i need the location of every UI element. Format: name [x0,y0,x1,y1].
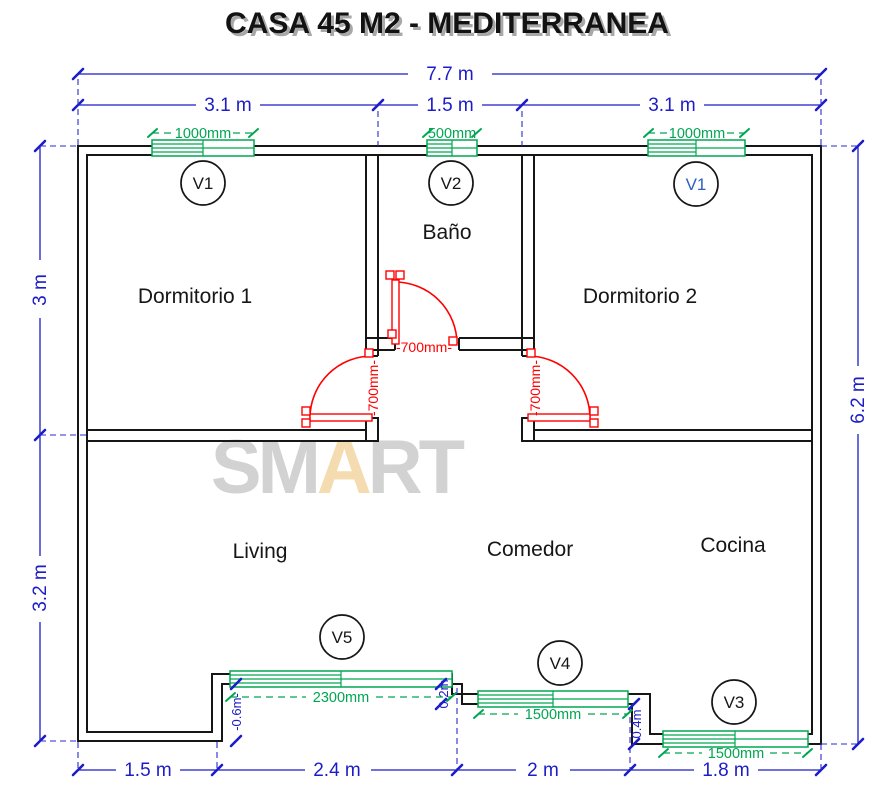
bathroom-right-wall [522,155,534,356]
dim-left-upper: 3 m [30,274,51,306]
window-tag-label: V4 [550,654,571,673]
window-tag-v1-left: V1 [181,161,225,205]
door-size-dorm1: -700mm- [365,360,381,416]
window-tag-label: V2 [441,174,462,193]
bathroom-left-wall [366,155,378,356]
room-label-comedor: Comedor [487,538,573,561]
window-v1-left [152,140,254,156]
dim-left-lower: 3.2 m [30,564,51,612]
window-v4 [478,691,628,707]
window-v3 [663,731,808,747]
room-label-bano: Baño [422,221,471,244]
window-tag-v1-right: V1 [674,162,718,206]
window-tag-label: V1 [193,174,214,193]
step-dimensions: -0.6m- 0.2m 0.4m [229,679,644,749]
window-v5 [230,671,452,687]
window-size-v5: 2300mm [313,690,369,706]
watermark-a: A [317,425,370,510]
room-label-dormitorio-2: Dormitorio 2 [583,285,697,308]
dim-top-seg1: 3.1 m [204,95,252,116]
room-label-dormitorio-1: Dormitorio 1 [138,285,252,308]
floor-plan-drawing: CASA 45 M2 - MEDITERRANEA CASA 45 M2 - M… [0,0,893,794]
smart-watermark: SMART [211,425,465,510]
dim-bottom-1: 1.5 m [124,760,172,781]
window-size-v2: 500mm [428,126,476,142]
dorm2-door: -700mm- [527,349,598,427]
watermark-rt: RT [368,425,465,510]
dim-step-0-4m: 0.4m [629,710,644,739]
window-dim-v2: 500mm [423,126,481,142]
window-size-v1-left: 1000mm [175,126,231,142]
room-label-cocina: Cocina [700,534,766,557]
bathroom-door: -700mm- [386,271,457,355]
dorm1-door: -700mm- [302,349,381,427]
window-v1-right [648,140,745,156]
dim-step-0-2m: 0.2m [436,680,451,709]
dim-top-seg2: 1.5 m [426,95,474,116]
page-title: CASA 45 M2 - MEDITERRANEA [225,7,669,40]
dim-bottom-2: 2.4 m [313,760,361,781]
dim-bottom-4: 1.8 m [702,760,750,781]
window-tag-label: V3 [724,693,745,712]
window-tag-v3: V3 [712,680,756,724]
window-v2 [427,140,477,156]
dim-bottom-3: 2 m [527,760,559,781]
window-size-v1-right: 1000mm [669,126,725,142]
door-size-dorm2: -700mm- [527,360,543,416]
door-size-bathroom: -700mm- [396,339,452,355]
dim-step-0-6m: -0.6m- [229,693,244,731]
window-size-v4: 1500mm [525,707,581,723]
window-tag-v5: V5 [320,615,364,659]
window-tag-v2: V2 [429,161,473,205]
dim-top-total: 7.7 m [426,64,474,85]
window-size-v3: 1500mm [708,746,764,762]
floor-plan-page: CASA 45 M2 - MEDITERRANEA CASA 45 M2 - M… [0,0,893,794]
watermark-sm: SM [211,425,317,510]
window-tag-label: V1 [686,175,707,194]
window-dim-v4: 1500mm [474,707,632,723]
dim-top-seg3: 3.1 m [648,95,696,116]
window-dim-v5: 2300mm [226,690,456,706]
window-tag-v4: V4 [538,641,582,685]
window-tag-label: V5 [332,628,353,647]
room-labels: Dormitorio 1 Baño Dormitorio 2 Living Co… [138,221,766,563]
dim-right-total: 6.2 m [848,376,869,424]
room-label-living: Living [233,540,288,563]
window-dim-v3: 1500mm [659,746,812,762]
doors: -700mm- -700mm- -700mm- [302,271,598,427]
